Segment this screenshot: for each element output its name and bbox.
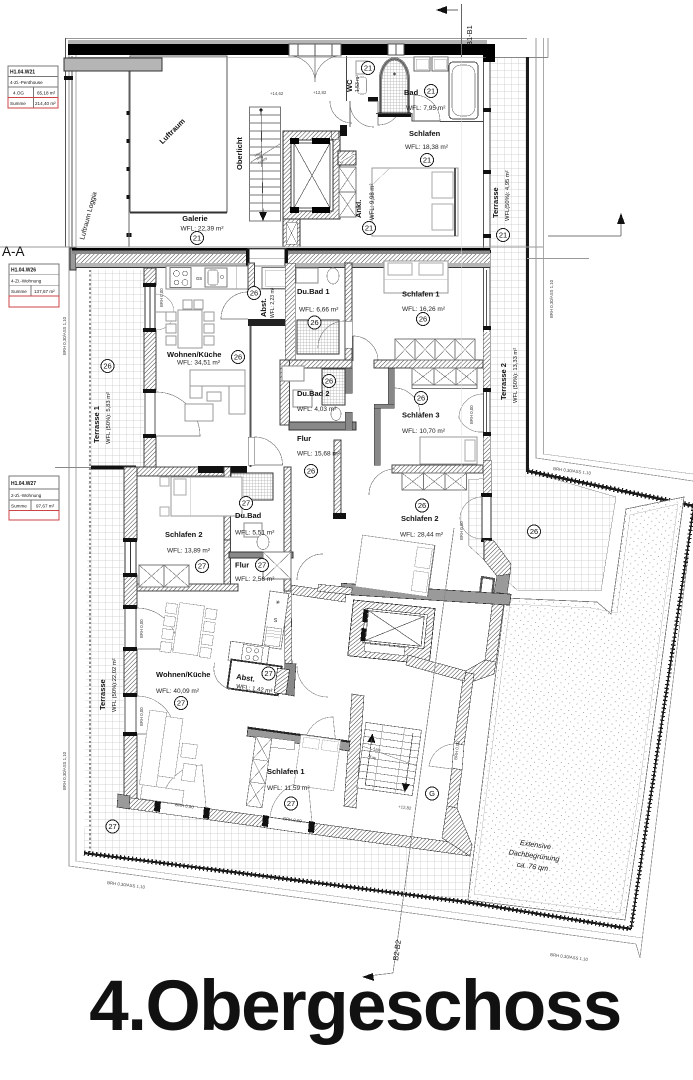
svg-text:21: 21: [364, 64, 372, 73]
svg-text:Schlafen 2: Schlafen 2: [401, 514, 439, 523]
svg-text:137,67 m²: 137,67 m²: [34, 289, 55, 294]
svg-text:+12,82: +12,82: [313, 90, 327, 95]
svg-text:WFL: 9,98 m²: WFL: 9,98 m²: [370, 184, 376, 220]
svg-text:Schlafen 2: Schlafen 2: [165, 530, 203, 539]
svg-text:Wohnen/Küche: Wohnen/Küche: [167, 350, 221, 359]
svg-text:27: 27: [258, 561, 266, 570]
svg-text:BRH 0,30/ASS 1,10: BRH 0,30/ASS 1,10: [62, 316, 67, 355]
svg-text:+14,62: +14,62: [270, 91, 284, 96]
svg-text:4-Zi.-Penthouse: 4-Zi.-Penthouse: [10, 80, 43, 85]
svg-text:27: 27: [198, 562, 206, 571]
svg-text:BRH 0,00: BRH 0,00: [139, 619, 144, 638]
svg-text:Du.Bad 1: Du.Bad 1: [297, 287, 330, 296]
svg-text:26: 26: [325, 377, 333, 386]
svg-text:WFL(50%): 4,95 m²: WFL(50%): 4,95 m²: [505, 170, 511, 221]
svg-text:27: 27: [287, 799, 295, 808]
svg-text:26: 26: [419, 315, 427, 324]
svg-text:H1.04.W26: H1.04.W26: [11, 268, 36, 274]
svg-text:WC: WC: [345, 79, 354, 92]
svg-text:Oberlicht: Oberlicht: [235, 137, 244, 170]
svg-text:27: 27: [108, 822, 116, 831]
svg-text:4.Obergeschoss: 4.Obergeschoss: [89, 967, 620, 1046]
svg-text:WFL: 6,66 m²: WFL: 6,66 m²: [299, 307, 339, 314]
svg-text:WFL: 40,09 m²: WFL: 40,09 m²: [156, 688, 200, 695]
svg-text:WFL (50%): 13,33 m²: WFL (50%): 13,33 m²: [513, 348, 519, 403]
svg-text:H1.04.W21: H1.04.W21: [10, 70, 35, 76]
svg-text:Schlafen 1: Schlafen 1: [402, 290, 440, 299]
svg-text:H1.04.W27: H1.04.W27: [11, 481, 36, 487]
svg-text:97,67 m²: 97,67 m²: [36, 504, 55, 509]
svg-text:Terrasse: Terrasse: [98, 679, 107, 710]
svg-text:Wohnen/Küche: Wohnen/Küche: [156, 670, 210, 679]
svg-text:27: 27: [242, 499, 250, 508]
svg-text:Du.Bad 2: Du.Bad 2: [297, 389, 330, 398]
svg-text:WFL: 28,44 m²: WFL: 28,44 m²: [400, 532, 444, 539]
svg-text:27: 27: [177, 699, 185, 708]
svg-text:GS: GS: [196, 276, 202, 281]
svg-text:WFL (50%): 5,83 m²: WFL (50%): 5,83 m²: [106, 392, 112, 444]
svg-text:WFL: 13,89 m²: WFL: 13,89 m²: [167, 548, 211, 555]
svg-text:Schlafen 1: Schlafen 1: [267, 767, 305, 776]
svg-text:214,40 m²: 214,40 m²: [35, 101, 56, 106]
svg-text:BRH 0,00: BRH 0,00: [139, 707, 144, 726]
svg-text:B1-B1: B1-B1: [465, 25, 474, 46]
svg-text:Summe: Summe: [10, 101, 26, 106]
svg-text:A-A: A-A: [2, 244, 25, 259]
svg-text:26: 26: [310, 318, 318, 327]
svg-text:21: 21: [423, 156, 431, 165]
svg-text:2-Zi.-Wohnung: 2-Zi.-Wohnung: [11, 493, 42, 498]
svg-text:26: 26: [234, 353, 242, 362]
svg-text:21: 21: [193, 234, 201, 243]
svg-text:27: 27: [264, 669, 272, 678]
svg-text:BRH 0,30/ASS 1,10: BRH 0,30/ASS 1,10: [549, 279, 554, 318]
svg-text:21: 21: [427, 87, 435, 96]
svg-text:BRH 0,30/ASS 1,10: BRH 0,30/ASS 1,10: [62, 751, 67, 790]
svg-text:WFL: 16,26 m²: WFL: 16,26 m²: [402, 306, 446, 313]
svg-text:Bad: Bad: [404, 88, 419, 97]
svg-text:1,53 m²: 1,53 m²: [355, 75, 361, 92]
svg-text:Flur: Flur: [235, 561, 249, 570]
svg-text:BRH 0,00: BRH 0,00: [469, 405, 474, 424]
svg-text:Summe: Summe: [11, 289, 27, 294]
svg-text:WFL: 22,39 m²: WFL: 22,39 m²: [181, 226, 225, 233]
svg-text:26: 26: [418, 501, 426, 510]
svg-text:26: 26: [417, 394, 425, 403]
svg-text:WFL: 11,59 m²: WFL: 11,59 m²: [267, 785, 310, 792]
svg-text:Flur: Flur: [297, 434, 311, 443]
svg-text:WFL: 7,95 m²: WFL: 7,95 m²: [406, 105, 446, 112]
svg-text:Terrasse 2: Terrasse 2: [499, 363, 508, 400]
svg-text:Du.Bad: Du.Bad: [235, 511, 262, 520]
svg-text:26: 26: [250, 289, 258, 298]
svg-text:WFL (50%):22,02 m²: WFL (50%):22,02 m²: [112, 658, 118, 712]
svg-text:WFL: 15,68 m²: WFL: 15,68 m²: [297, 451, 341, 458]
svg-text:Galerie: Galerie: [182, 214, 207, 223]
svg-text:G: G: [429, 789, 435, 798]
svg-text:Terrasse: Terrasse: [491, 187, 500, 218]
svg-text:WFL: 2,23 m²: WFL: 2,23 m²: [270, 287, 276, 318]
svg-text:21: 21: [365, 224, 373, 233]
svg-text:Schlafen: Schlafen: [409, 129, 441, 138]
svg-text:26: 26: [530, 527, 538, 536]
svg-text:Abst.: Abst.: [259, 298, 268, 317]
svg-text:65,18 m²: 65,18 m²: [37, 91, 56, 96]
svg-text:4.OG: 4.OG: [13, 91, 24, 96]
svg-text:WFL: 4,03 m²: WFL: 4,03 m²: [297, 406, 337, 413]
svg-text:Ankl.: Ankl.: [354, 200, 363, 218]
svg-text:26: 26: [307, 467, 315, 476]
svg-text:WFL: 18,38 m²: WFL: 18,38 m²: [405, 144, 449, 151]
svg-text:Schlafen 3: Schlafen 3: [402, 411, 440, 420]
svg-text:Terrasse 1: Terrasse 1: [92, 406, 101, 443]
svg-text:WFL: 5,51 m²: WFL: 5,51 m²: [235, 530, 275, 537]
svg-text:WFL: 10,70 m²: WFL: 10,70 m²: [402, 428, 446, 435]
svg-text:WFL: 34,51 m²: WFL: 34,51 m²: [177, 360, 221, 367]
svg-text:21: 21: [499, 231, 507, 240]
svg-text:BRH 0,00: BRH 0,00: [159, 288, 164, 307]
svg-text:BRH 0,00: BRH 0,00: [459, 521, 464, 540]
svg-text:26: 26: [103, 362, 111, 371]
svg-text:Summe: Summe: [11, 504, 27, 509]
svg-text:WFL: 2,56 m²: WFL: 2,56 m²: [235, 576, 275, 583]
svg-text:4-Zi.-Wohnung: 4-Zi.-Wohnung: [11, 279, 42, 284]
